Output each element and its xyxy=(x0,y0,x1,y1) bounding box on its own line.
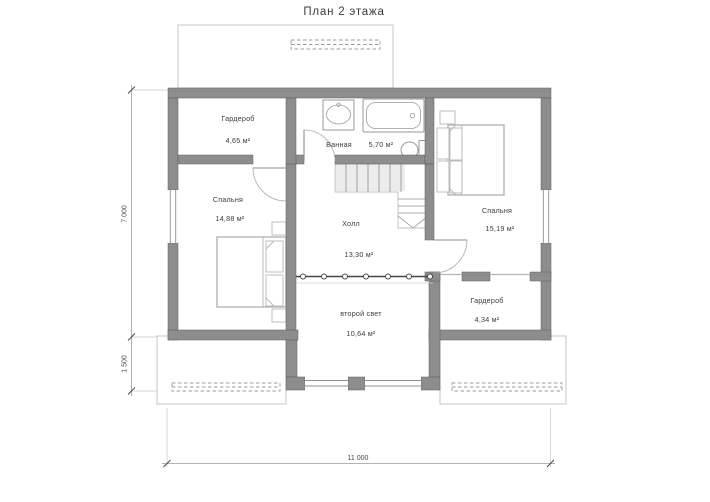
door-right-bedroom xyxy=(434,240,467,273)
room-area-bedroom-left: 14,88 м² xyxy=(216,214,245,223)
wall-left-lower xyxy=(168,243,178,340)
dim-horizontal-total: 11 000 xyxy=(348,455,369,462)
pier-bottom-left xyxy=(286,377,305,390)
floor-plan: План 2 этажа xyxy=(0,0,710,502)
pillow xyxy=(450,128,462,160)
terrace-bl-outline xyxy=(157,336,286,404)
wall-right-lower xyxy=(541,243,551,340)
pier-bottom-center xyxy=(348,377,365,390)
door-left-bedroom xyxy=(253,168,286,201)
terrace-bottom-left xyxy=(157,336,286,404)
room-area-hall: 13,30 м² xyxy=(345,250,374,259)
dim-vertical-lower: 1 500 xyxy=(122,355,129,373)
wall-hall-bedroom xyxy=(425,164,434,240)
wall-right-upper xyxy=(541,98,551,190)
bathroom-fixtures xyxy=(323,99,427,160)
baluster xyxy=(407,274,412,279)
bed-right-bedroom xyxy=(437,111,504,195)
room-area-bedroom-right: 15,19 м² xyxy=(486,224,515,233)
room-label-hall: Холл xyxy=(342,219,360,228)
pillow xyxy=(266,275,283,306)
terrace-top-outline xyxy=(178,25,393,88)
stair-treads-lower xyxy=(398,199,428,228)
wall-wardrobe2-seg2 xyxy=(530,272,551,281)
nightstand xyxy=(272,222,286,235)
nightstand xyxy=(437,161,449,192)
baluster xyxy=(322,274,327,279)
room-label-wardrobe-bottom: Гардероб xyxy=(470,296,503,305)
wall-bottom-right xyxy=(429,330,551,340)
baluster xyxy=(364,274,369,279)
room-label-wardrobe-top: Гардероб xyxy=(221,114,254,123)
room-area-wardrobe-bottom: 4,34 м² xyxy=(475,315,500,324)
nightstand xyxy=(272,309,286,322)
room-area-bathroom: 5,70 м² xyxy=(369,140,394,149)
terrace-bottom-right xyxy=(440,336,566,404)
bathtub xyxy=(363,99,424,132)
baluster xyxy=(386,274,391,279)
sink xyxy=(323,100,354,130)
baluster xyxy=(343,274,348,279)
baluster xyxy=(428,274,433,279)
dim-vertical-main: 7 000 xyxy=(122,205,129,223)
baluster xyxy=(301,274,306,279)
room-label-bedroom-left: Спальня xyxy=(213,195,243,204)
wall-left-upper xyxy=(168,98,178,190)
wall-bedroom-hall xyxy=(286,164,296,330)
terrace-top xyxy=(178,25,393,88)
room-label-bathroom: Ванная xyxy=(326,140,352,149)
wall-top xyxy=(168,88,551,98)
room-area-wardrobe-top: 4,65 м² xyxy=(226,136,251,145)
terrace-br-outline xyxy=(440,336,566,404)
dimension-horizontal: 11 000 xyxy=(162,408,555,467)
wall-bathroom-bedroom xyxy=(425,98,434,164)
wall-bathroom-bottom xyxy=(335,155,425,164)
railing xyxy=(296,274,433,283)
window-left xyxy=(168,190,178,243)
wall-bottom-left xyxy=(168,330,298,340)
wall-secondlight-left xyxy=(286,340,297,377)
nightstand xyxy=(437,128,449,159)
room-area-second-light: 10,64 м² xyxy=(347,329,376,338)
plan-title: План 2 этажа xyxy=(303,6,384,18)
wall-wardrobe-bedroom xyxy=(178,155,253,164)
wall-wardrobe2-pier xyxy=(462,272,490,281)
pillow xyxy=(450,161,462,193)
pillow xyxy=(266,241,283,272)
bed-left-bedroom xyxy=(217,222,286,322)
wall-wardrobe-bathroom xyxy=(286,98,296,164)
window-right xyxy=(541,190,551,243)
shelf xyxy=(440,111,455,124)
room-label-second-light: второй свет xyxy=(340,309,382,318)
room-label-bedroom-right: Спальня xyxy=(482,206,512,215)
window-bottom-2 xyxy=(365,377,421,390)
pier-bottom-right xyxy=(421,377,440,390)
window-bottom-1 xyxy=(305,377,348,390)
wall-secondlight-right xyxy=(429,272,440,377)
wall-bathroom-stub xyxy=(296,155,304,164)
